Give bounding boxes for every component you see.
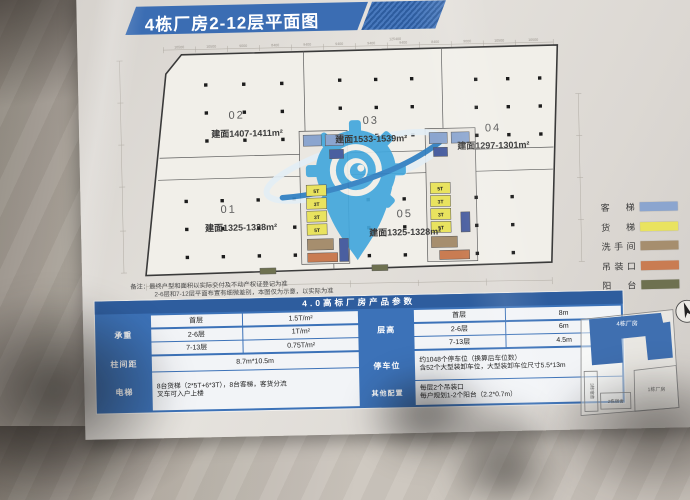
compass-north-arrow: [676, 300, 690, 322]
unit-01-area: 建面1325-1328m²: [205, 221, 277, 234]
lift-capacity-label: 3T: [314, 215, 320, 221]
legend-item-washroom: 洗手间: [601, 238, 678, 253]
floor-label: 2-6层: [151, 327, 243, 341]
elevator-group: 电梯 8台货梯（2*5T+6*3T），8台客梯，客货分流 叉车可入户上楼: [98, 368, 360, 411]
unit-05-number: 05: [397, 208, 413, 220]
dim-top: 8400: [271, 43, 279, 47]
page-title: 4栋厂房2-12层平面图: [130, 1, 431, 35]
floor-label: 首层: [413, 308, 505, 322]
dim-top: 9400: [303, 43, 311, 47]
load-value: 0.75T/m²: [244, 338, 359, 352]
row-label-elevator: 电梯: [98, 373, 151, 412]
unit-03-area: 建面1533-1539m²: [335, 132, 407, 145]
lift-capacity-label: 5T: [314, 228, 320, 234]
site-key-map: 4栋厂房 3栋宿舍 2栋宿舍 1栋厂房: [575, 297, 690, 420]
title-hatch-decoration: [361, 0, 446, 30]
dim-top: 10500: [528, 38, 538, 42]
legend-label: 客梯: [601, 200, 635, 214]
spec-table-left: 承重 首层 1.5T/m² 2-6层 1T/m² 7-13层 0.75T/m²: [97, 311, 360, 411]
unit-04-number: 04: [485, 122, 501, 134]
dim-top: 10500: [494, 39, 504, 43]
spec-table: 4.0高标厂房产品参数 承重 首层 1.5T/m² 2-6层 1T/m²: [95, 291, 625, 414]
unit-03-number: 03: [363, 115, 379, 127]
lift-capacity-label: 5T: [313, 189, 319, 195]
legend-swatch-hoist: [641, 260, 679, 270]
title-text: 4栋厂房2-12层平面图: [144, 7, 319, 36]
dim-total-top: 125400: [389, 37, 401, 41]
legend-item-hoist-opening: 吊装口: [602, 258, 679, 273]
lift-capacity-label: 3T: [314, 202, 320, 208]
legend-label: 洗手间: [601, 239, 635, 253]
dim-top: 9000: [239, 44, 247, 48]
load-value: 1T/m²: [243, 325, 358, 339]
unit-04-area: 建面1297-1301m²: [457, 139, 529, 152]
legend-item-passenger-lift: 客梯: [601, 199, 678, 214]
row-label-column-spacing: 柱间距: [98, 356, 150, 372]
dim-top: 9400: [367, 41, 375, 45]
row-label-floor-height: 层高: [360, 310, 413, 350]
floorplan-poster: 4栋厂房2-12层平面图 10500 10500 9000 8400 9400 …: [76, 0, 690, 440]
lift-capacity-label: 3T: [438, 199, 444, 205]
lift-capacity-label: 5T: [437, 186, 443, 192]
dim-top: 10500: [206, 45, 216, 49]
legend-swatch-freight: [640, 221, 678, 231]
floor-label: 首层: [150, 314, 242, 328]
row-label-load: 承重: [97, 316, 150, 356]
unit-02-area: 建面1407-1411m²: [211, 127, 283, 139]
elevator-value: 8台货梯（2*5T+6*3T），8台客梯，客货分流 叉车可入户上楼: [152, 368, 360, 410]
dim-top: 9400: [335, 42, 343, 46]
load-value: 1.5T/m²: [243, 311, 358, 325]
unit-01-number: 01: [220, 204, 236, 216]
dim-top: 8400: [431, 40, 439, 44]
legend: 客梯 货梯 洗手间 吊装口 阳台: [601, 199, 680, 298]
legend-swatch-passenger: [640, 201, 678, 211]
load-capacity-group: 承重 首层 1.5T/m² 2-6层 1T/m² 7-13层 0.75T/m²: [97, 311, 359, 355]
dim-top: 9000: [463, 39, 471, 43]
unit-02-number: 02: [228, 109, 244, 121]
dim-top: 10500: [174, 45, 184, 49]
row-label-parking: 停车位: [361, 351, 414, 381]
legend-item-freight-lift: 货梯: [601, 219, 678, 234]
legend-label: 货梯: [601, 220, 635, 234]
floor-label: 7-13层: [414, 335, 506, 349]
keymap-label-building-1: 1栋厂房: [648, 386, 666, 393]
legend-label: 吊装口: [602, 259, 636, 273]
unit-05-area: 建面1325-1328m²: [369, 225, 441, 238]
floor-label: 2-6层: [414, 322, 506, 336]
lift-capacity-label: 3T: [438, 212, 444, 218]
legend-swatch-washroom: [640, 240, 678, 250]
dim-top: 9400: [399, 41, 407, 45]
row-label-other-config: 其他配置: [361, 381, 413, 406]
floor-plan: 10500 10500 9000 8400 9400 9400 9400 940…: [105, 33, 615, 296]
floor-label: 7-13层: [151, 341, 243, 355]
legend-swatch-balcony: [641, 279, 679, 289]
